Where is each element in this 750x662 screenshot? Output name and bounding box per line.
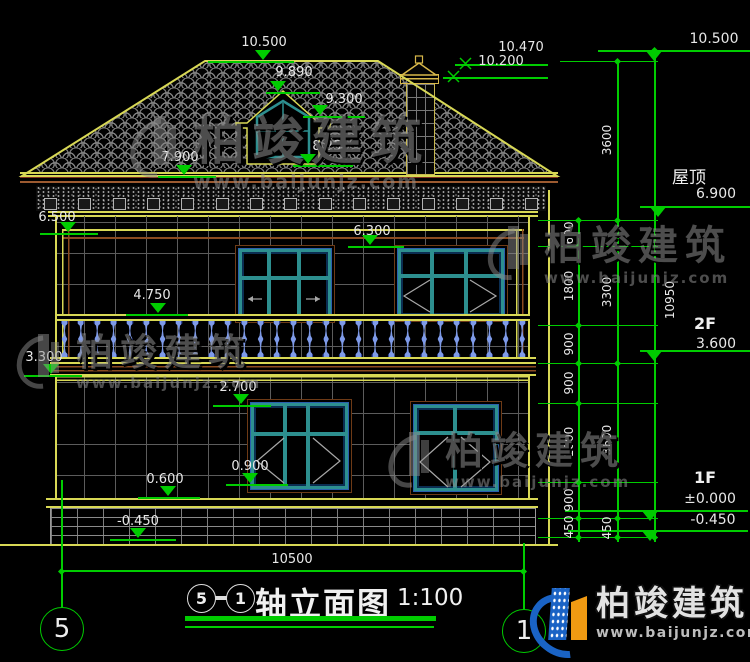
ext-line [538, 325, 658, 326]
dim-line-overall [654, 50, 656, 542]
brand-name: 柏竣建筑 [596, 586, 750, 623]
watermark-left: 柏竣建筑 www.baijunjz.com [18, 334, 261, 392]
brand-building-orange [571, 596, 587, 640]
watermark-building-bar [508, 226, 518, 269]
watermark-name: 柏竣建筑 [445, 432, 630, 470]
chimney-finial [416, 56, 423, 63]
level-10500-label: 10.500 [232, 35, 296, 50]
level-4750-line [126, 314, 188, 316]
level-neg0450-label: -0.450 [104, 514, 172, 529]
floor1-marker [642, 511, 658, 521]
watermark-name: 柏竣建筑 [544, 226, 732, 266]
right-level-neg0450: -0.450 [676, 512, 750, 528]
title-underline-thin [185, 626, 434, 628]
level-0600-marker [160, 486, 176, 496]
axis5-extension [61, 480, 63, 607]
level-0900-line [226, 484, 288, 486]
watermark-bottom: 柏竣建筑 www.baijunjz.com [391, 432, 630, 491]
right-level-neg0450-line [568, 530, 748, 532]
drawing-scale: 1:100 [397, 585, 463, 611]
brand-url: www.baijunjz.com [596, 625, 750, 641]
level-10200-line [443, 77, 548, 79]
level-neg0450-line [110, 539, 176, 541]
ext-line [538, 537, 658, 538]
chimney-pyramid [402, 63, 436, 75]
title-axis-5: 5 [196, 589, 207, 608]
width-dim-line [61, 570, 523, 572]
roof-level-label: 屋顶 [672, 163, 706, 188]
title-underline-thick [185, 616, 436, 621]
dim-inner-900a: 900 [562, 327, 576, 361]
watermark-logo-icon [133, 116, 185, 180]
title-axis-circle-1: 1 [226, 584, 255, 613]
watermark-logo-icon [18, 334, 68, 390]
ext-line [538, 363, 658, 364]
level-6500-label: 6.500 [25, 210, 89, 225]
level-4750-marker [150, 303, 166, 313]
level-0600-line [138, 497, 200, 499]
watermark-roof: 柏竣建筑 www.baijunjz.com [133, 116, 429, 193]
level-2700-marker [233, 394, 249, 404]
dim-mid-3600a: 3600 [600, 123, 614, 157]
watermark-building-bar [520, 234, 527, 265]
level-10470-label: 10.470 [489, 40, 553, 55]
watermark-building-bar [38, 334, 49, 377]
axis-bubble-5-number: 5 [54, 614, 71, 644]
dim-mid-450: 450 [600, 511, 614, 545]
level-0900-label: 0.900 [218, 459, 282, 474]
ext-line [538, 403, 658, 404]
watermark-logo-icon [391, 432, 437, 490]
floor2-label: 2F [694, 314, 716, 333]
ext-line [538, 518, 658, 519]
title-axis-1: 1 [235, 589, 246, 608]
watermark-right: 柏竣建筑 www.baijunjz.com [490, 226, 732, 287]
watermark-building-bar [154, 116, 165, 165]
level-0600-label: 0.600 [133, 472, 197, 487]
watermark-building-bar [167, 125, 175, 161]
level-9890-label: 9.890 [262, 65, 326, 80]
axis1-extension [523, 543, 525, 609]
right-level-10500-line [598, 50, 750, 52]
level-6500-line [40, 233, 98, 235]
brand-building-blue [548, 588, 570, 640]
watermark-building-bar [51, 342, 59, 373]
watermark-name: 柏竣建筑 [76, 334, 261, 371]
ext-line [538, 220, 658, 221]
level-10200-label: 10.200 [469, 54, 533, 69]
watermark-url: www.baijunjz.com [544, 269, 732, 287]
dim-inner-900b: 900 [562, 366, 576, 400]
level-6300-marker [362, 235, 378, 245]
roof-level-marker [650, 207, 666, 217]
brand-logo: 柏竣建筑 www.baijunjz.com [528, 586, 750, 654]
watermark-url: www.baijunjz.com [76, 374, 261, 392]
level-6500-marker [60, 222, 76, 232]
watermark-building-bar [409, 432, 419, 476]
level-9890-marker [270, 81, 286, 91]
floor1-label: 1F [694, 468, 716, 487]
title-axis-circle-5: 5 [187, 584, 216, 613]
ext-line [560, 61, 658, 62]
level-0900-marker [242, 473, 258, 483]
watermark-url: www.baijunjz.com [445, 473, 630, 491]
level-2700-line [213, 405, 271, 407]
roof-level-value: 6.900 [682, 186, 750, 202]
overall-width-label: 10500 [262, 552, 322, 567]
right-level-10500: 10.500 [678, 31, 750, 47]
level-10500-marker [255, 50, 271, 60]
floor1-value: ±0.000 [672, 491, 748, 507]
dim-inner-450: 450 [562, 510, 576, 544]
watermark-logo-icon [490, 226, 536, 282]
level-neg0450-marker [130, 528, 146, 538]
brand-logo-icon [528, 586, 594, 654]
watermark-name: 柏竣建筑 [193, 116, 429, 168]
elevation-drawing-sheet: 10.500 9.890 9.300 8.250 7.900 10.470 10… [0, 0, 750, 662]
axis-bubble-5: 5 [40, 607, 84, 651]
watermark-building-bar [421, 440, 428, 472]
level-6300-line [348, 246, 404, 248]
level-4750-label: 4.750 [120, 288, 184, 303]
watermark-url: www.baijunjz.com [193, 171, 429, 193]
level-10500-line [208, 61, 294, 63]
